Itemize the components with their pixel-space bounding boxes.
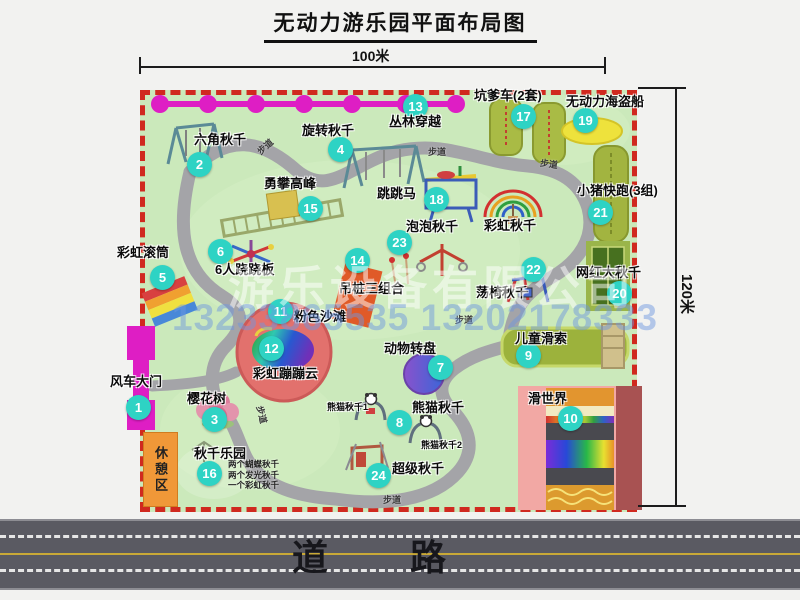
attraction-label-17: 坑爹车(2套) — [474, 89, 542, 103]
attraction-badge-14[interactable]: 14 — [345, 248, 370, 273]
attraction-badge-22[interactable]: 22 — [521, 257, 546, 282]
attraction-label-20: 网红大秋千 — [576, 266, 641, 280]
attraction-badge-9[interactable]: 9 — [516, 343, 541, 368]
attraction-label-8: 熊猫秋千 — [412, 401, 464, 415]
attraction-badge-2[interactable]: 2 — [187, 152, 212, 177]
swing-detail-line: 两个发光秋千 — [228, 470, 279, 481]
dimension-ext-top — [638, 87, 686, 89]
attraction-label-11: 粉色沙滩 — [294, 310, 346, 324]
attraction-label-16: 秋千乐园 — [194, 447, 246, 461]
attraction-badge-12[interactable]: 12 — [259, 336, 284, 361]
attraction-label-15: 勇攀高峰 — [264, 177, 316, 191]
dimension-tick-top-right — [604, 57, 606, 74]
attraction-label-18: 跳跳马 — [377, 187, 416, 201]
attraction-badge-8[interactable]: 8 — [387, 410, 412, 435]
walkway-label-2: 步道 — [539, 156, 559, 171]
attraction-badge-15[interactable]: 15 — [298, 196, 323, 221]
dimension-label-height: 120米 — [677, 274, 698, 314]
attraction-badge-11[interactable]: 11 — [268, 299, 293, 324]
attraction-badge-20[interactable]: 20 — [607, 281, 632, 306]
attraction-label-4: 旋转秋千 — [302, 124, 354, 138]
road-label: 道 路 — [292, 529, 482, 581]
attraction-label-1: 风车大门 — [110, 375, 162, 389]
park-layout-poster: 无动力游乐园平面布局图 100米 120米 休憩区 — [0, 0, 800, 600]
walkway-label-4: 步道 — [254, 404, 271, 425]
dimension-label-width: 100米 — [352, 46, 389, 66]
attraction-badge-7[interactable]: 7 — [428, 355, 453, 380]
attraction-label-12: 彩虹蹦蹦云 — [253, 367, 318, 381]
dimension-line-top — [140, 66, 606, 68]
attraction-badge-4[interactable]: 4 — [328, 137, 353, 162]
road: 道 路 — [0, 519, 800, 590]
attraction-badge-18[interactable]: 18 — [424, 187, 449, 212]
walkway-label-1: 步道 — [428, 145, 446, 158]
walkway-label-3: 步道 — [455, 313, 473, 326]
extra-label-2: 熊猫秋千2 — [421, 441, 462, 451]
walkway-label-5: 步道 — [383, 493, 401, 506]
attraction-badge-3[interactable]: 3 — [202, 407, 227, 432]
attraction-badge-21[interactable]: 21 — [588, 200, 613, 225]
attraction-label-14: 吊桩三组合 — [339, 282, 404, 296]
walkway-label-0: 步道 — [254, 136, 276, 158]
attraction-label-22: 荡椅秋千 — [476, 286, 528, 300]
attraction-label-9: 儿童滑索 — [515, 332, 567, 346]
attraction-badge-16[interactable]: 16 — [197, 461, 222, 486]
attraction-label-19: 无动力海盗船 — [566, 95, 644, 109]
attraction-label-6: 6人跷跷板 — [215, 263, 274, 277]
attraction-label-24: 超级秋千 — [392, 462, 444, 476]
attraction-label-23: 泡泡秋千 — [406, 220, 458, 234]
title-wrap: 无动力游乐园平面布局图 — [0, 7, 800, 43]
extra-label-1: 熊猫秋千1 — [327, 403, 368, 413]
swing-paradise-details: 两个蝴蝶秋千两个发光秋千一个彩虹秋千 — [228, 459, 279, 491]
attraction-badge-10[interactable]: 10 — [558, 406, 583, 431]
dimension-tick-top-left — [139, 57, 141, 74]
attraction-badge-17[interactable]: 17 — [511, 104, 536, 129]
attraction-badge-19[interactable]: 19 — [573, 108, 598, 133]
attraction-badge-1[interactable]: 1 — [126, 395, 151, 420]
attraction-badge-6[interactable]: 6 — [208, 239, 233, 264]
attraction-badge-24[interactable]: 24 — [366, 463, 391, 488]
attraction-label-13: 丛林穿越 — [389, 115, 441, 129]
attraction-badge-5[interactable]: 5 — [150, 265, 175, 290]
attraction-label-10: 滑世界 — [528, 392, 567, 406]
page-title: 无动力游乐园平面布局图 — [264, 7, 537, 43]
attraction-label-21: 小猪快跑(3组) — [577, 184, 658, 198]
attraction-label-7: 动物转盘 — [384, 342, 436, 356]
dimension-ext-bottom — [638, 505, 686, 507]
extra-label-0: 彩虹秋千 — [484, 219, 536, 233]
attraction-label-5: 彩虹滚筒 — [117, 246, 169, 260]
swing-detail-line: 一个彩虹秋千 — [228, 480, 279, 491]
attraction-label-3: 樱花树 — [187, 392, 226, 406]
attraction-label-2: 六角秋千 — [194, 133, 246, 147]
